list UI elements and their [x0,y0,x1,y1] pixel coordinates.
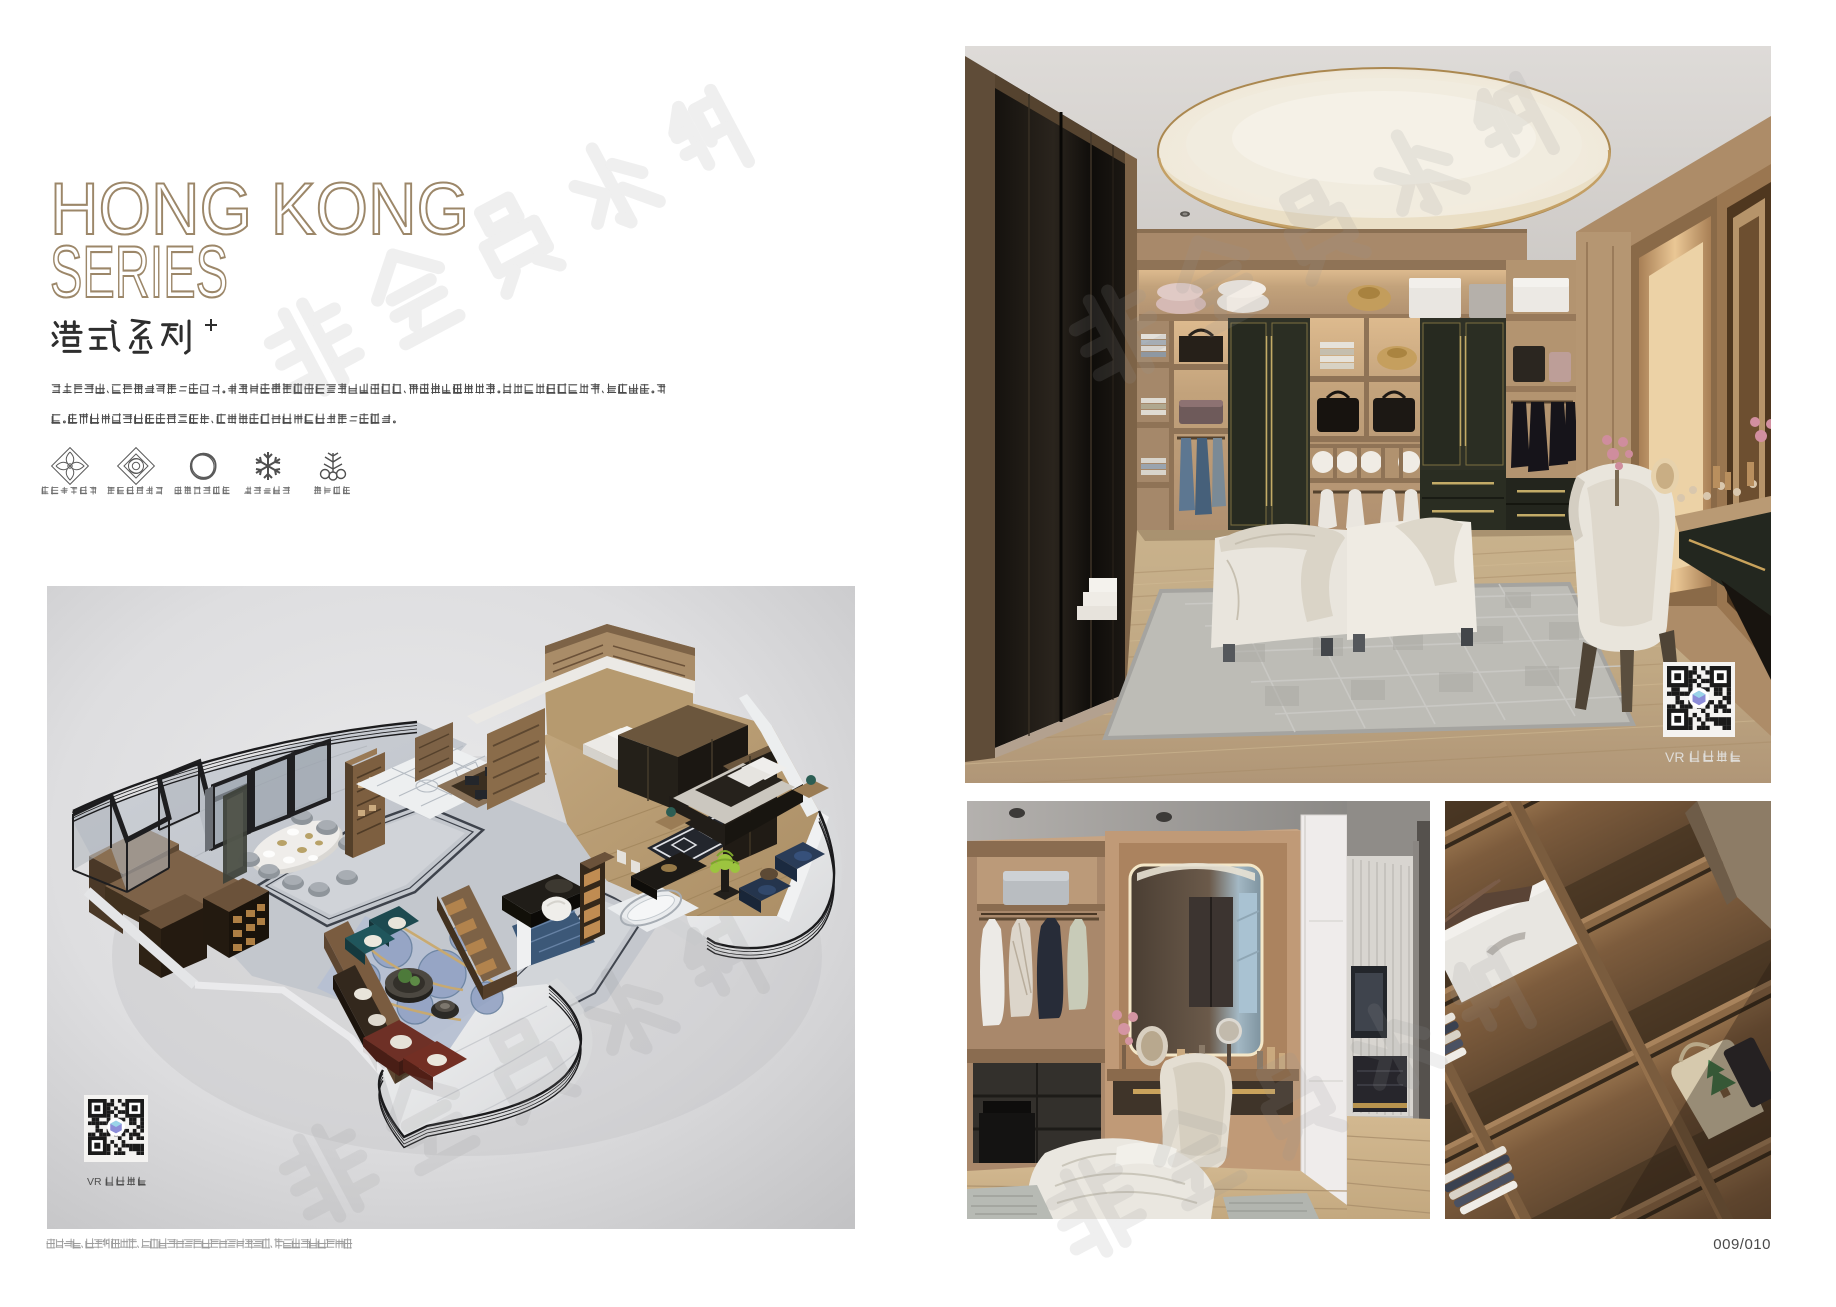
svg-text:VR: VR [1665,749,1684,765]
svg-text:VR: VR [87,1176,102,1188]
svg-text:SERIES: SERIES [50,232,228,310]
